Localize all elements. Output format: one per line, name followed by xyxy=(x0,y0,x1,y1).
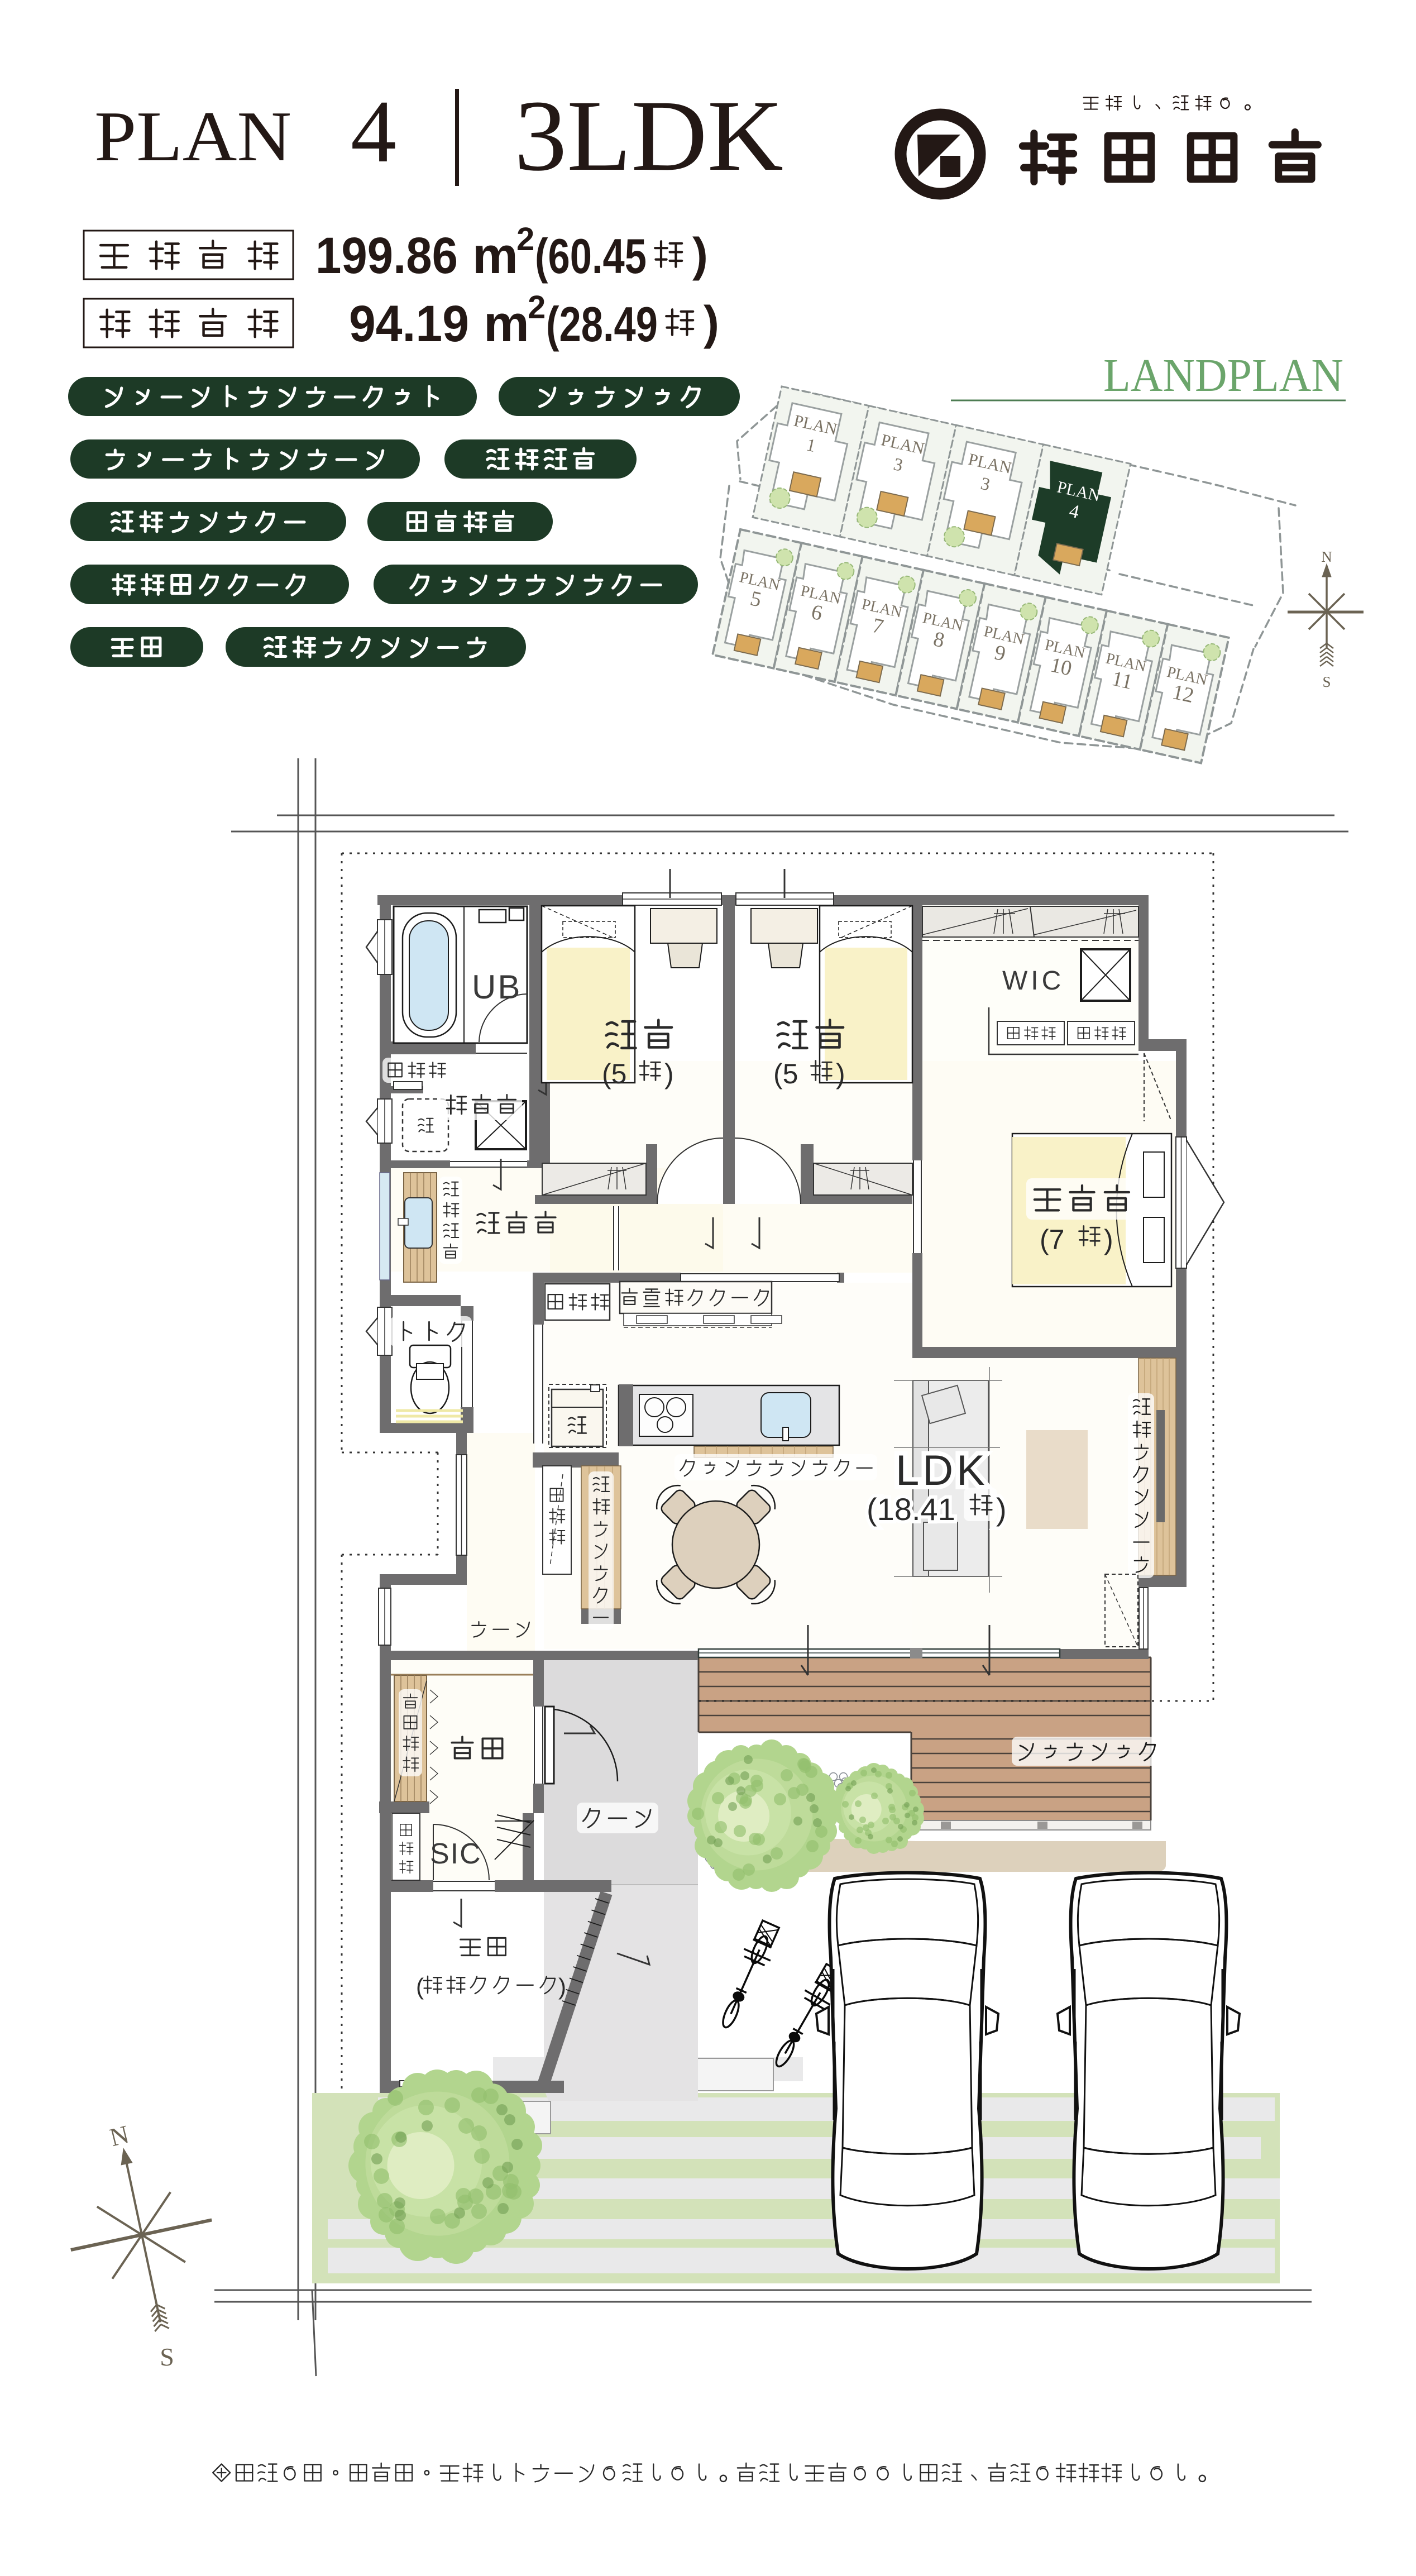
svg-text:(28.49: (28.49 xyxy=(546,297,658,352)
svg-text:(18.41: (18.41 xyxy=(867,1492,955,1527)
svg-text:LDK: LDK xyxy=(896,1447,988,1494)
svg-text:(5: (5 xyxy=(773,1058,798,1089)
svg-text:PLAN: PLAN xyxy=(94,97,291,176)
svg-text:2: 2 xyxy=(516,221,534,257)
svg-text:4: 4 xyxy=(351,82,396,181)
svg-text:94.19: 94.19 xyxy=(349,295,469,352)
svg-text:(: ( xyxy=(416,1973,424,2000)
svg-text:199.86: 199.86 xyxy=(315,227,458,284)
svg-text:): ) xyxy=(996,1492,1007,1527)
svg-text:S: S xyxy=(1322,673,1331,690)
svg-text:UB: UB xyxy=(472,968,522,1006)
svg-text:m: m xyxy=(472,227,518,284)
svg-text:m: m xyxy=(484,295,529,352)
svg-text:): ) xyxy=(692,228,708,281)
svg-text:): ) xyxy=(664,1058,674,1089)
svg-text:(7: (7 xyxy=(1040,1224,1064,1255)
svg-text:LANDPLAN: LANDPLAN xyxy=(1103,350,1343,402)
svg-text:N: N xyxy=(1321,548,1332,565)
svg-text:(5: (5 xyxy=(602,1058,626,1089)
svg-text:(60.45: (60.45 xyxy=(535,228,647,284)
svg-text:S: S xyxy=(160,2343,174,2371)
svg-text:3LDK: 3LDK xyxy=(514,80,783,192)
svg-text:): ) xyxy=(1104,1224,1113,1255)
svg-text:WIC: WIC xyxy=(1002,966,1064,996)
svg-text:2: 2 xyxy=(528,289,546,326)
svg-text:): ) xyxy=(558,1973,566,2000)
svg-text:): ) xyxy=(704,297,719,349)
svg-text:): ) xyxy=(836,1058,845,1089)
